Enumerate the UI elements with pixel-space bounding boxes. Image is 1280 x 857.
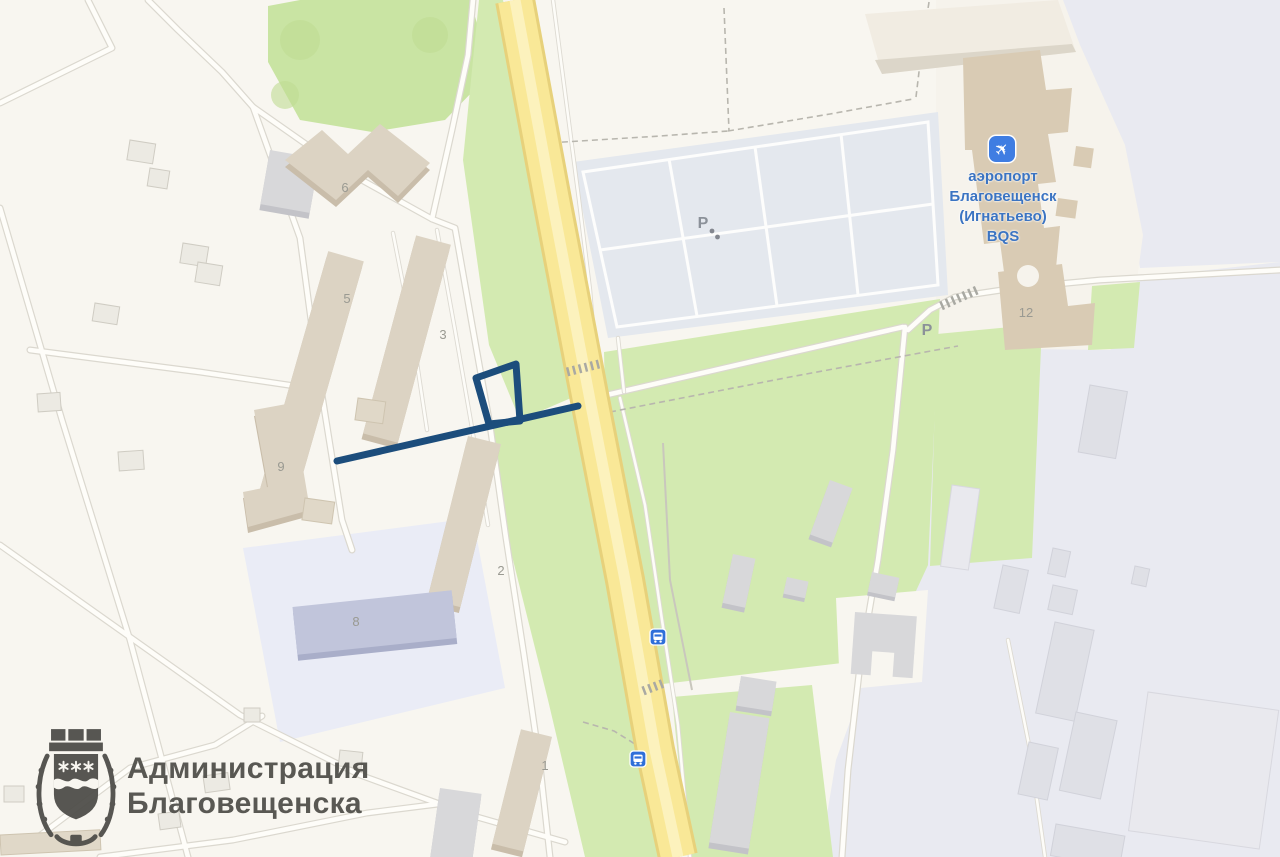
building-number: 5 [343,291,350,306]
airport-label-line: аэропорт [913,167,1093,187]
building-number: 6 [341,180,348,195]
building-number: 3 [439,327,446,342]
bus-stop-icon [630,751,646,767]
airport-label-code: BQS [913,227,1093,247]
airport-label-line: (Игнатьево) [913,207,1093,227]
airplane-glyph: ✈ [991,138,1013,160]
parking-dot [715,235,720,240]
building-12-notch [1017,265,1039,287]
building-number: 1 [541,758,548,773]
green-patch-fareast [1088,282,1140,350]
airport-outbuilding [1073,146,1094,168]
parking-dot [710,229,715,234]
green-patch-topleft [268,0,482,132]
parking-label: P [922,322,933,339]
house [302,498,335,524]
building-number: 8 [352,614,359,629]
building-number: 12 [1019,305,1033,320]
map-canvas: 6 5 3 9 2 8 1 12 P P ✈ аэропорт Благовещ… [0,0,1280,857]
tree [271,81,299,109]
airport-label: аэропорт Благовещенск (Игнатьево) BQS [913,167,1093,247]
airport-icon: ✈ [989,136,1015,162]
building-number: 2 [497,563,504,578]
house [355,398,386,424]
tree [280,20,320,60]
bus-stop-icon [650,629,666,645]
airport-label-line: Благовещенск [913,187,1093,207]
map-graphics: 6 5 3 9 2 8 1 12 P P [0,0,1280,857]
building-number: 9 [277,459,284,474]
parking-label: P [698,215,709,232]
tree [412,17,448,53]
